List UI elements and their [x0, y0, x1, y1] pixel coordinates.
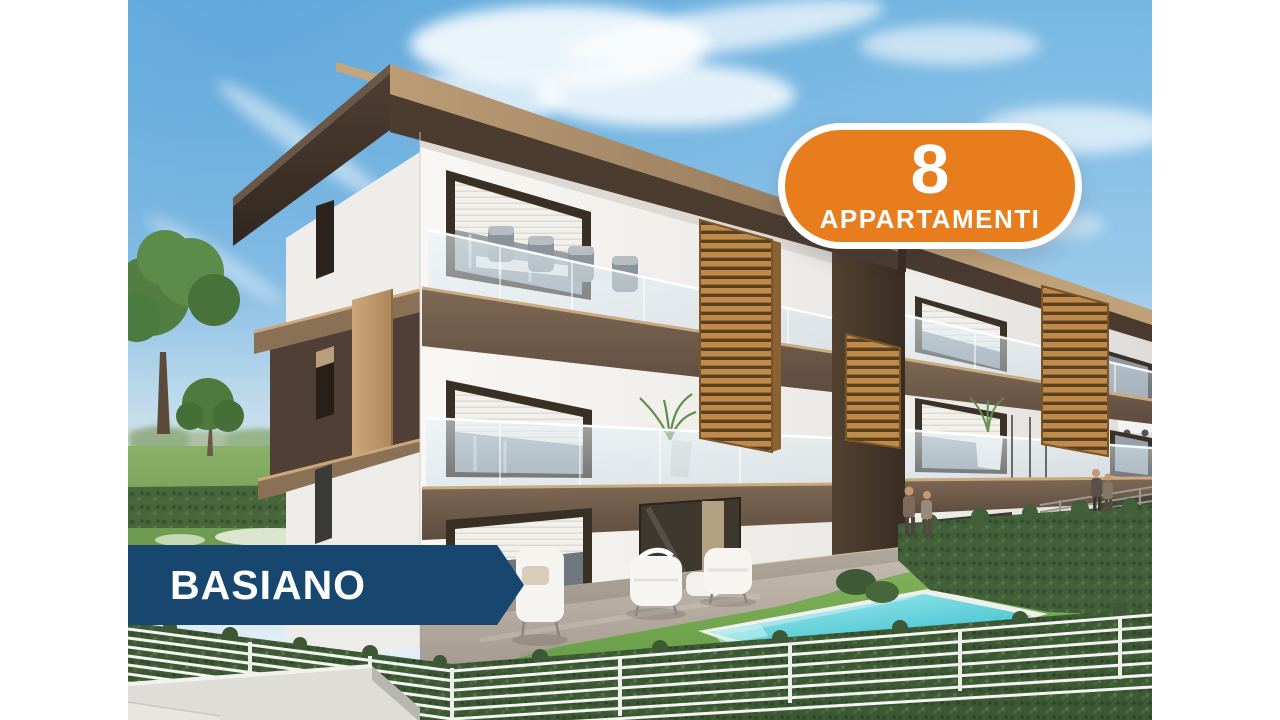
apartments-label: APPARTAMENTI [820, 204, 1041, 235]
wood-louver-left [700, 220, 781, 452]
location-name: BASIANO [128, 562, 366, 609]
apartments-count: 8 [911, 137, 950, 201]
apartments-count-badge: 8 APPARTAMENTI [778, 123, 1082, 249]
location-banner: BASIANO [128, 545, 524, 625]
wood-louver-right [1042, 286, 1108, 456]
flyer-canvas: 8 APPARTAMENTI BASIANO [0, 0, 1280, 720]
